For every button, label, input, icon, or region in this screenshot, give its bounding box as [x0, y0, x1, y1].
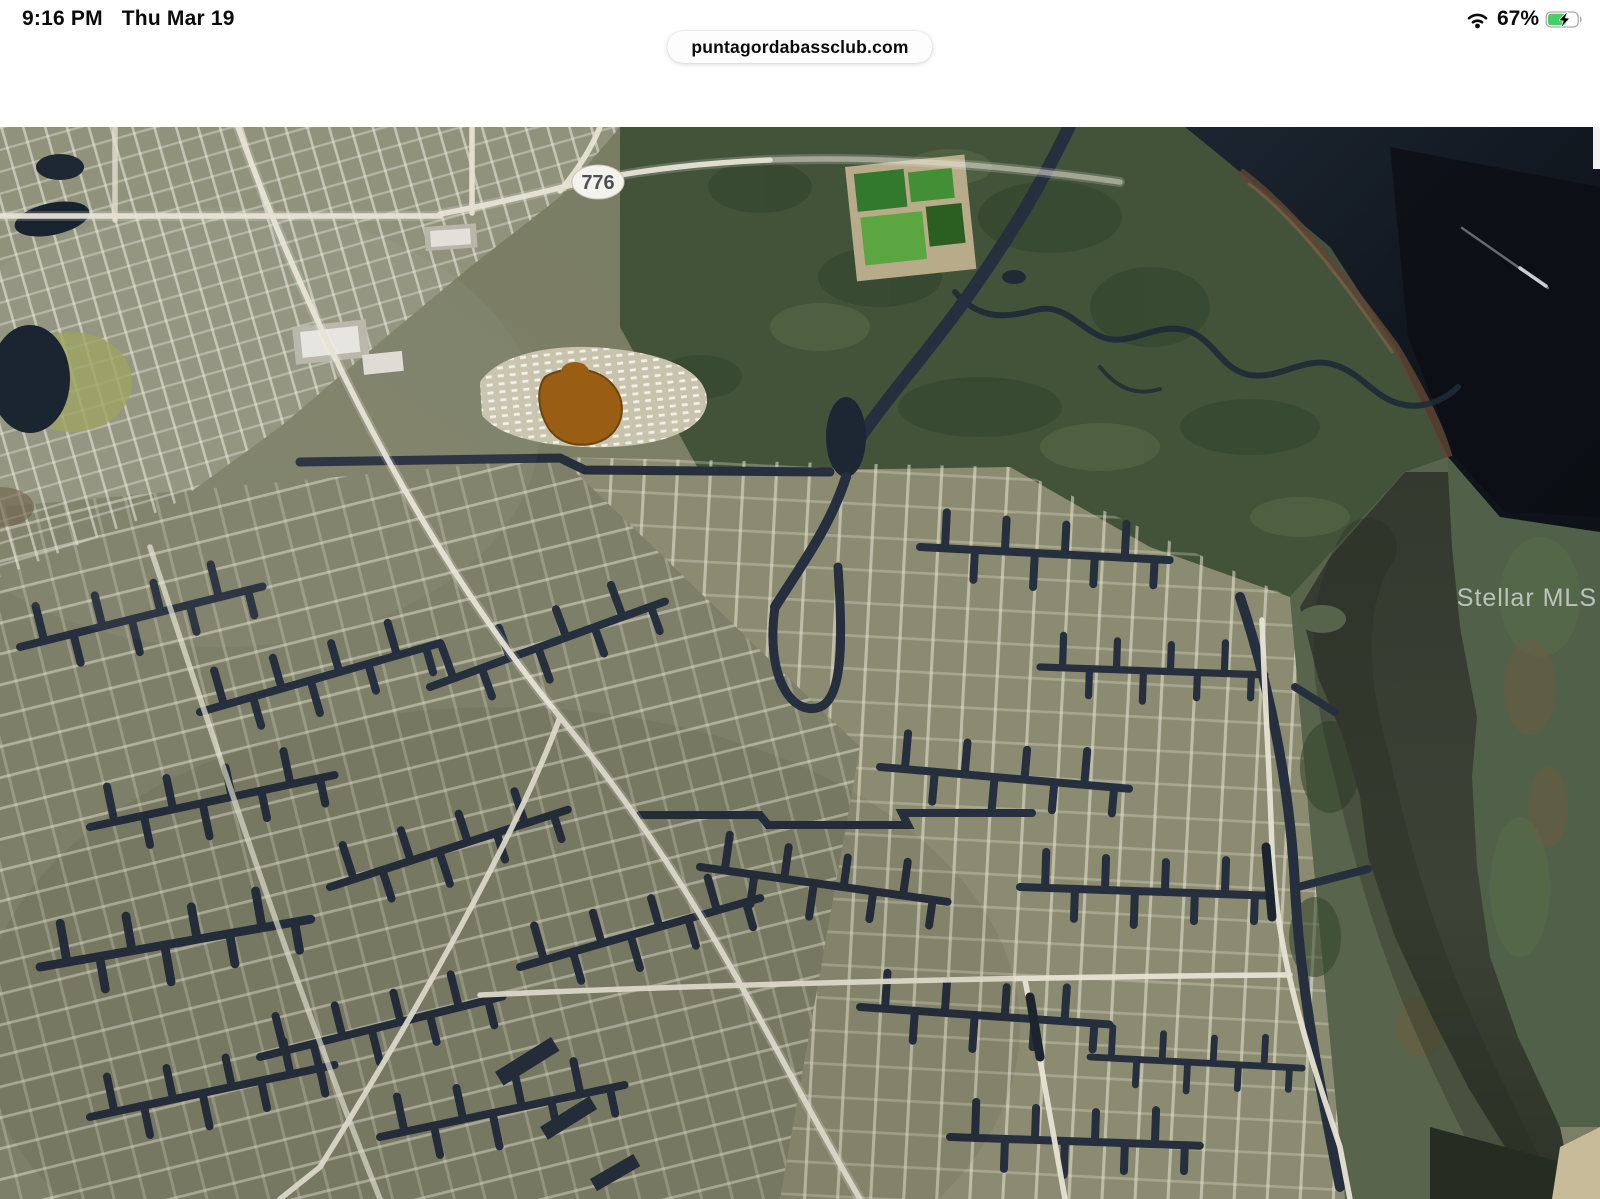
wifi-icon [1464, 9, 1491, 30]
url-address-pill[interactable]: puntagordabassclub.com [667, 31, 932, 63]
date-label: Thu Mar 19 [122, 7, 235, 31]
aerial-map-image[interactable]: 776 Stellar MLS [0, 127, 1600, 1199]
status-bar-right: 67% [1464, 7, 1587, 31]
edge-sliver [1593, 127, 1600, 169]
route-shield-776: 776 [572, 165, 624, 199]
battery-percent-label: 67% [1497, 7, 1539, 31]
ipad-screenshot: 9:16 PM Thu Mar 19 67% [0, 0, 1600, 1199]
time-label: 9:16 PM [22, 7, 103, 31]
golf-course-patch [845, 154, 976, 281]
status-bar-left: 9:16 PM Thu Mar 19 [22, 7, 235, 31]
stellar-mls-watermark: Stellar MLS [1457, 584, 1597, 612]
battery-charging-icon [1545, 9, 1587, 30]
route-shield-label: 776 [581, 172, 614, 194]
url-label: puntagordabassclub.com [691, 37, 908, 58]
